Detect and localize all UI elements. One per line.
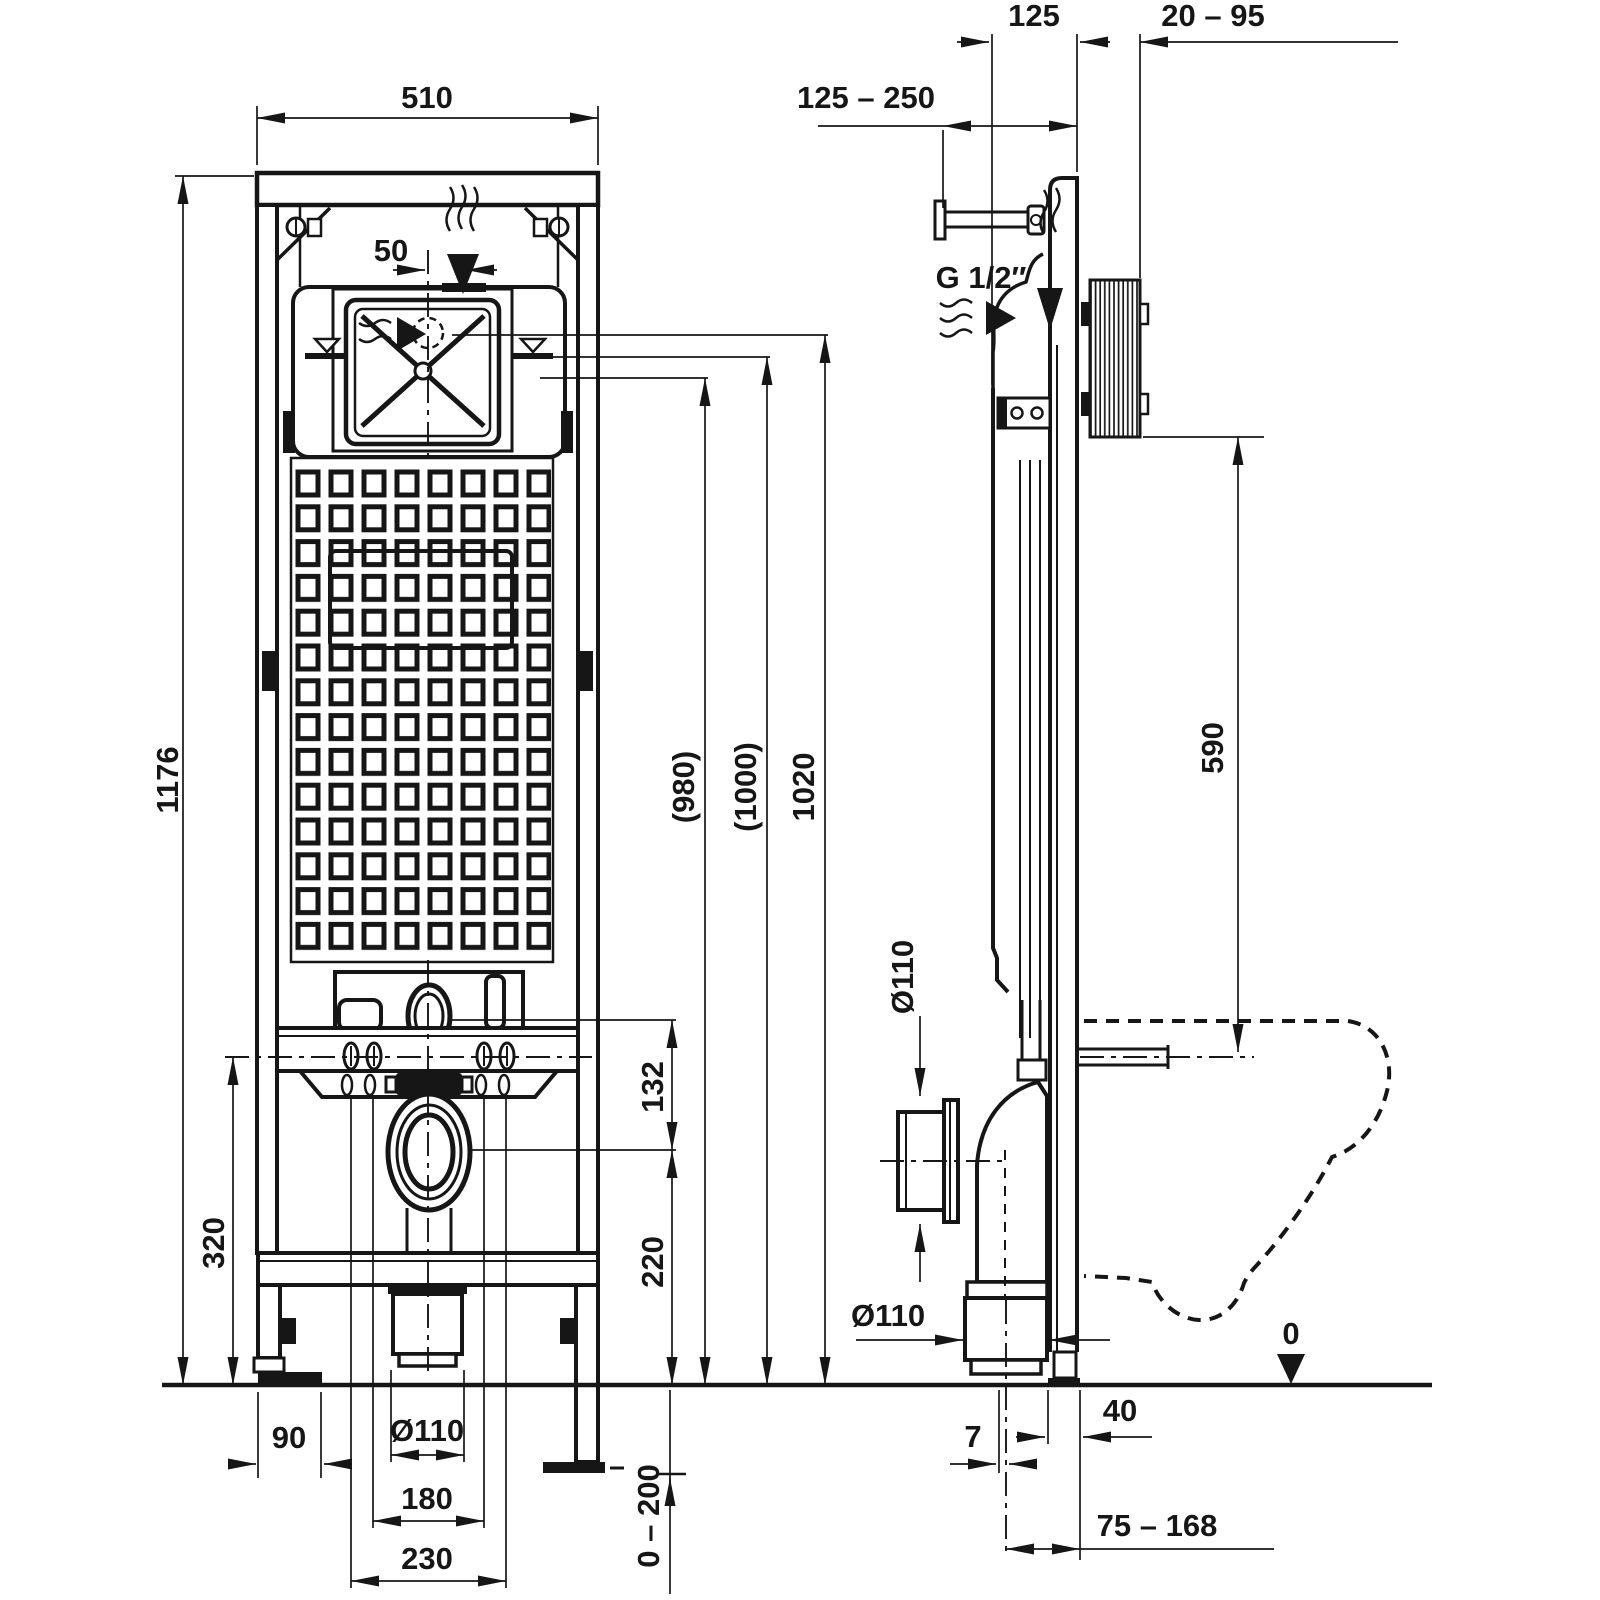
dim-1020: 1020	[786, 753, 821, 822]
dim-drain-pipe-dia: Ø110	[851, 1298, 925, 1333]
box-clip	[283, 411, 295, 453]
leg-clip	[560, 1318, 575, 1344]
dim-drain-dia-front: Ø110	[390, 1413, 464, 1448]
label-floor-datum: 0	[1282, 1316, 1299, 1351]
protection-plate	[291, 458, 553, 962]
dim-320: 320	[196, 1217, 231, 1269]
cistern-profile	[993, 388, 1008, 992]
dim-180: 180	[401, 1481, 453, 1516]
dim-inlet-offset: 50	[374, 233, 408, 268]
dim-7: 7	[964, 1419, 981, 1454]
top-plate	[257, 173, 598, 205]
lower-assembly	[254, 972, 624, 1473]
dim-drain-range: 75 – 168	[1097, 1508, 1218, 1543]
box-clip	[561, 411, 573, 453]
dim-40: 40	[1103, 1393, 1137, 1428]
water-supply-icon	[940, 300, 1016, 337]
side-rail	[1050, 178, 1077, 1352]
dim-height: 1176	[150, 746, 185, 813]
right-leg	[576, 1285, 598, 1462]
dim-230: 230	[401, 1541, 453, 1576]
rail-bracket-tab	[578, 651, 593, 691]
right-foot-plate	[543, 1462, 605, 1473]
dim-132: 132	[635, 1061, 670, 1113]
dim-220: 220	[635, 1236, 670, 1288]
installation-frame-drawing: 510 1176 50 (980) (1000) 1020 132 220 32…	[0, 0, 1600, 1600]
dim-wall-range: 20 – 95	[1161, 0, 1264, 33]
dim-980: (980)	[666, 751, 701, 823]
left-rail	[257, 205, 277, 1253]
leg-clip	[281, 1318, 296, 1344]
flush-spud	[1018, 1060, 1046, 1080]
dim-125: 125	[1008, 0, 1060, 33]
left-foot-plate	[258, 1372, 322, 1384]
drain-elbow	[977, 1082, 1047, 1282]
protection-box-side	[1090, 280, 1140, 437]
dim-stub-dia: Ø110	[885, 940, 920, 1014]
left-leg	[258, 1285, 280, 1358]
dim-1000: (1000)	[728, 742, 763, 832]
dim-90: 90	[272, 1420, 306, 1455]
drain-collar	[967, 1282, 1047, 1298]
label-water-connection: G 1/2″	[936, 260, 1027, 295]
side-view-frame	[898, 178, 1168, 1386]
rail-bracket-tab	[262, 651, 277, 691]
dim-width: 510	[401, 80, 453, 115]
floor-datum-icon	[1277, 1354, 1305, 1384]
dim-590: 590	[1195, 722, 1230, 774]
dim-leg-adjust: 0 – 200	[631, 1464, 666, 1567]
right-rail	[578, 205, 598, 1253]
dim-bracket-range: 125 – 250	[797, 80, 935, 115]
technical-drawing-page: 510 1176 50 (980) (1000) 1020 132 220 32…	[0, 0, 1600, 1600]
